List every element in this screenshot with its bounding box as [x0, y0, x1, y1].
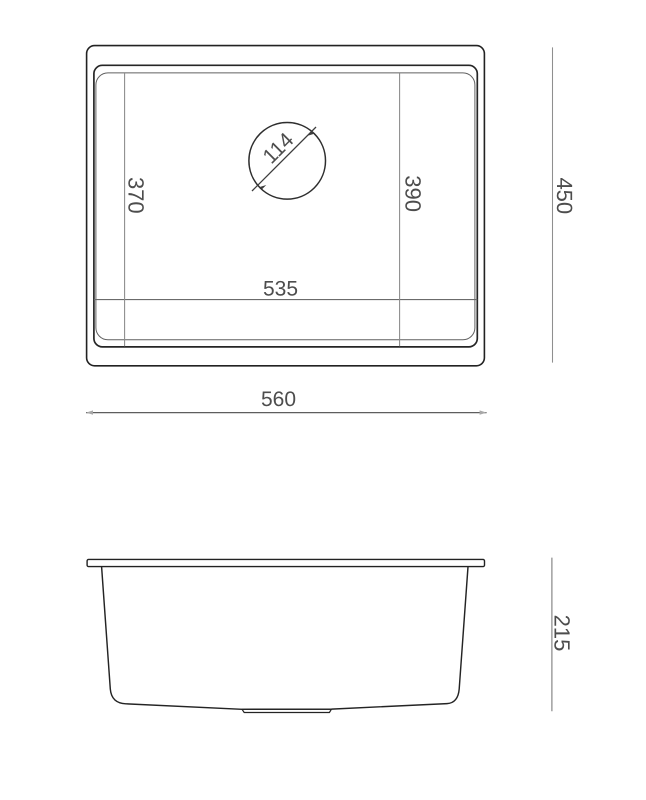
svg-text:390: 390 — [400, 175, 425, 212]
svg-text:560: 560 — [261, 388, 296, 411]
svg-text:450: 450 — [552, 177, 577, 214]
svg-text:215: 215 — [550, 615, 575, 652]
svg-text:370: 370 — [124, 177, 149, 214]
svg-text:535: 535 — [263, 277, 298, 300]
svg-text:114: 114 — [259, 128, 299, 168]
